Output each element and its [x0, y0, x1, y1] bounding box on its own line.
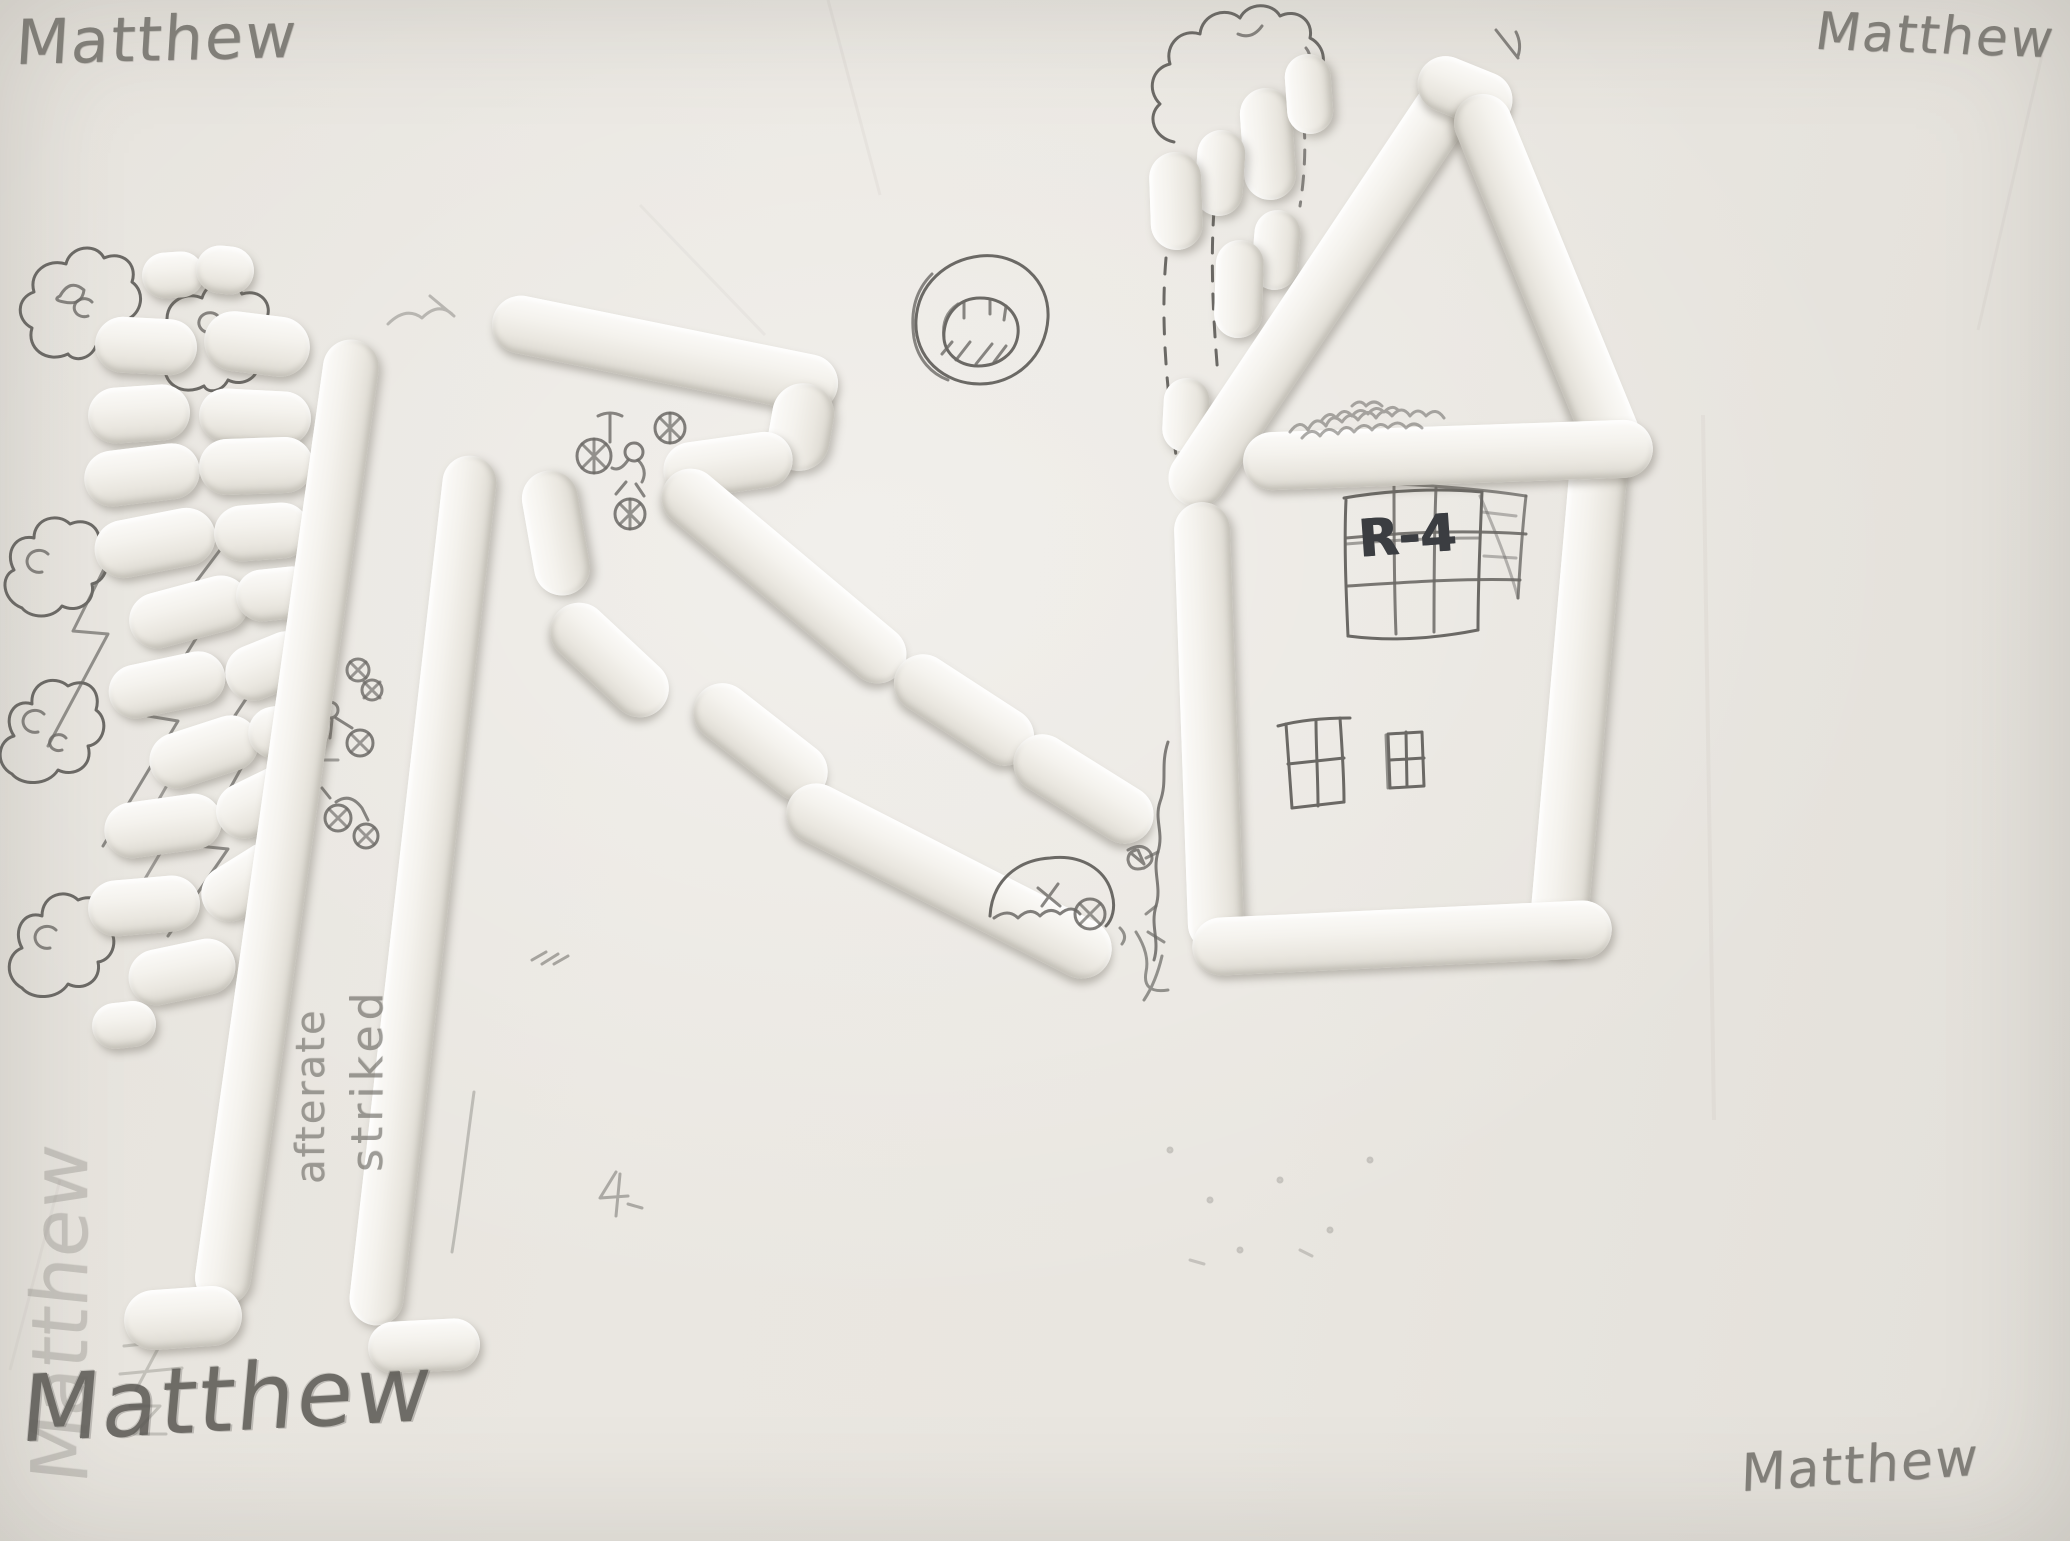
- signature-top-right: Matthew: [1812, 2, 2059, 70]
- craft-artwork-photo: Matthew Matthew Matthew Matthew Matthew …: [0, 0, 2070, 1541]
- signature-top-left: Matthew: [14, 0, 301, 79]
- vertical-note-word: afterate: [288, 1009, 334, 1184]
- vertical-note-word: striked: [342, 988, 393, 1172]
- signature-bottom-right: Matthew: [1740, 1427, 1981, 1504]
- house-room-label: R-4: [1356, 503, 1458, 570]
- signature-left-vertical: Matthew: [16, 1141, 106, 1488]
